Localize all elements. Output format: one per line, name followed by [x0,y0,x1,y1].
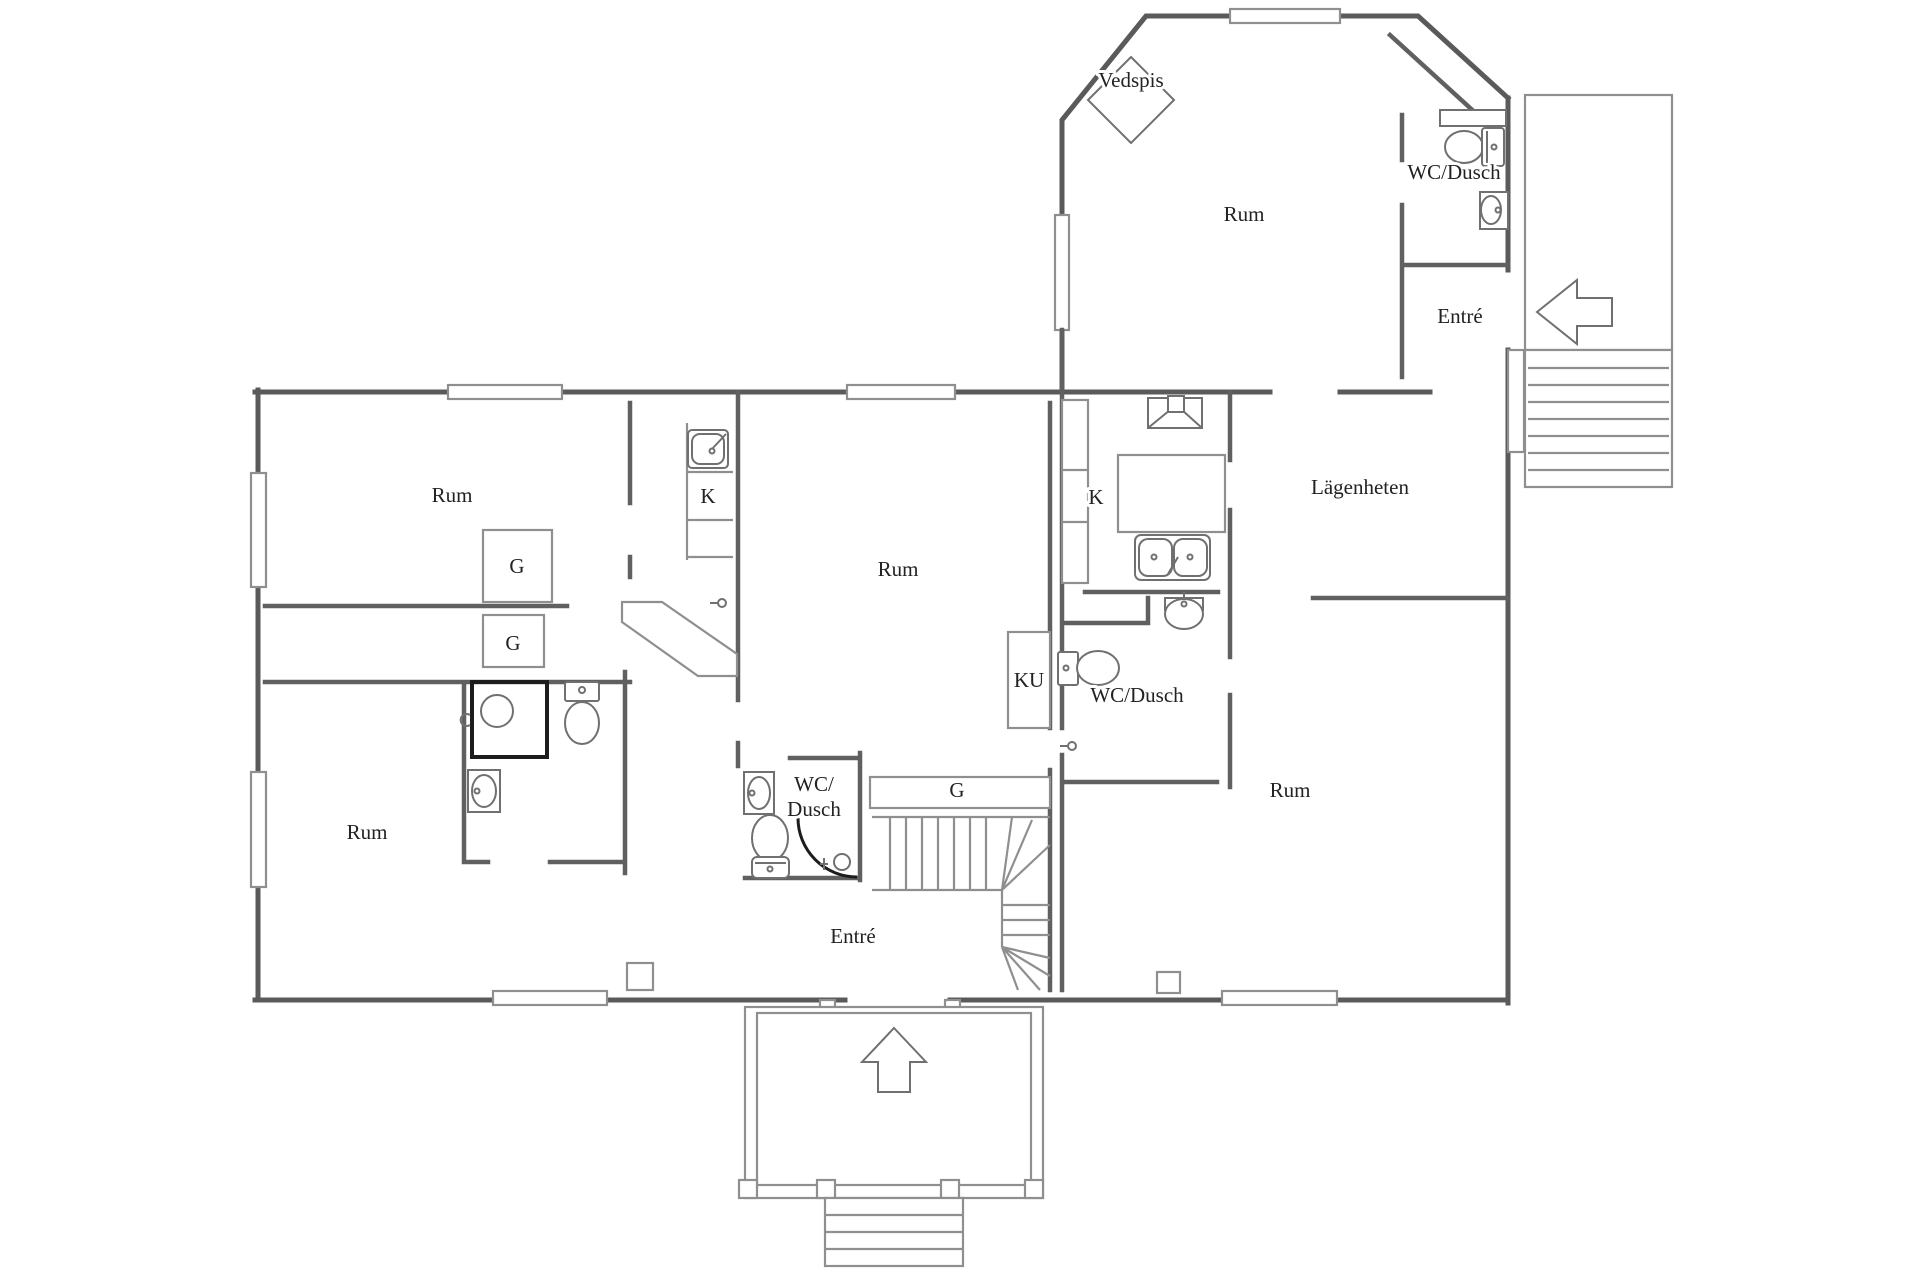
toilet-icon [1058,651,1119,685]
toilet-icon [565,682,599,744]
floor-plan-drawing: Vedspis Rum WC/Dusch Entré Lägenheten K … [0,0,1920,1280]
kitchen-island [1118,455,1225,532]
label-entre-top: Entré [1437,304,1482,328]
outer-walls [255,16,1508,1003]
porch-post [739,1180,757,1198]
porch-post [817,1180,835,1198]
chimney-notch [627,963,653,990]
bathroom-left [461,682,599,812]
floor-plan-page: Vedspis Rum WC/Dusch Entré Lägenheten K … [0,0,1920,1280]
label-lagenheten: Lägenheten [1311,475,1409,499]
window-icon [1222,991,1337,1005]
label-vedspis: Vedspis [1098,68,1163,92]
label-wc-central-2: Dusch [787,797,841,821]
window-icon [1230,9,1340,23]
label-k-left: K [700,484,715,508]
window-icon [251,473,266,587]
label-g2: G [505,631,520,655]
label-rum-center: Rum [878,557,919,581]
label-rum-bottom-right: Rum [1270,778,1311,802]
bathroom-right [1058,592,1203,685]
window-icon [1055,215,1069,330]
label-ku: KU [1014,668,1044,692]
stove-icon [1148,396,1202,428]
label-wc-dusch-right: WC/Dusch [1090,683,1184,707]
chimney-notch [1157,972,1180,993]
window-icon [847,385,955,399]
interior-walls [265,35,1508,1013]
shelf-icon [1440,110,1506,126]
label-rum-top-left: Rum [432,483,473,507]
label-wc-dusch-top: WC/Dusch [1407,160,1501,184]
label-g1: G [509,554,524,578]
closets-counters [483,400,1225,808]
label-g-stairs: G [949,778,964,802]
sink-icon [744,772,774,814]
window-icon [251,772,266,887]
label-rum-bottom-left: Rum [347,820,388,844]
entrance-porch [739,1007,1043,1266]
label-entre-main: Entré [830,924,875,948]
kitchen-counter [1062,400,1088,583]
understair-closet [622,602,737,676]
label-k-right: K [1088,485,1103,509]
window-icon [493,991,607,1005]
toilet-icon [752,815,789,878]
kitchen-double-sink-icon [1135,535,1210,580]
shower-head-icon [481,695,513,727]
label-wc-central-1: WC/ [794,772,834,796]
stairs-icon [872,817,1050,990]
window-icon [448,385,562,399]
deck-side-wall [1508,350,1524,452]
sink-icon [468,770,500,812]
porch-post [1025,1180,1043,1198]
sink-icon [1480,192,1508,229]
label-rum-octagon: Rum [1224,202,1265,226]
sink-icon [688,430,728,468]
porch-post [941,1180,959,1198]
right-deck [1508,95,1672,487]
floor-drain-icon [834,854,850,870]
sink-icon [1165,592,1203,629]
